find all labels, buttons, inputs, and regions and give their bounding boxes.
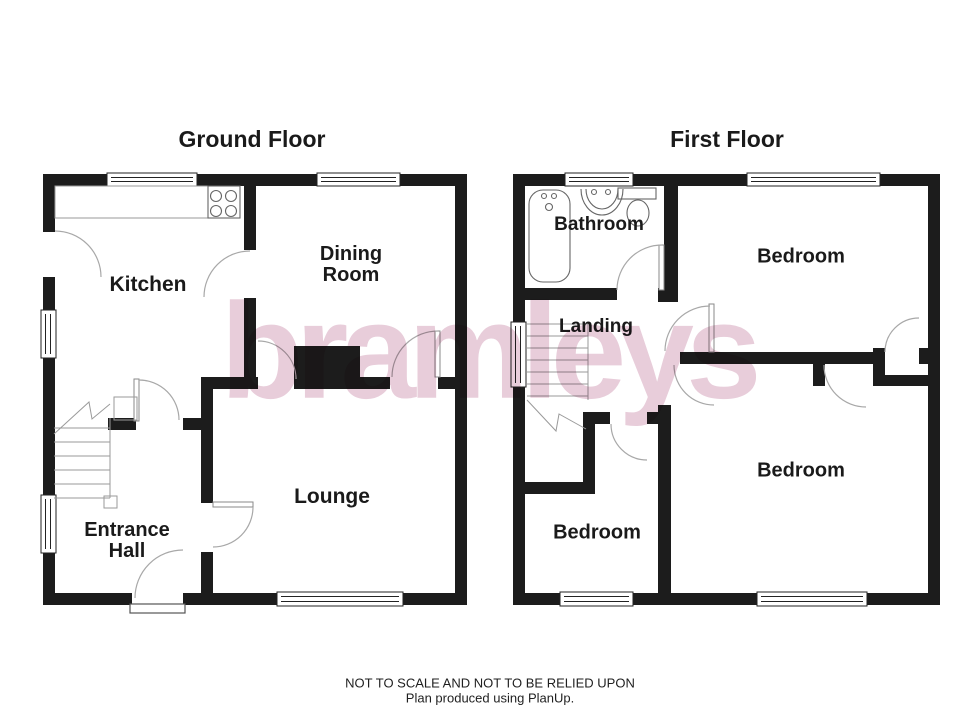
room-label-bedroom-top: Bedroom — [757, 247, 845, 268]
first-floor-title: First Floor — [670, 127, 784, 151]
room-label-entrance-hall: Entrance Hall — [84, 520, 170, 562]
window — [565, 173, 633, 186]
window — [511, 322, 526, 387]
floor-plan-page: Ground Floor First Floor Kitchen Dining … — [0, 0, 980, 712]
window — [107, 173, 197, 186]
kitchen-counter — [55, 186, 208, 218]
window — [41, 310, 56, 358]
footer-disclaimer: NOT TO SCALE AND NOT TO BE RELIED UPON — [345, 676, 635, 691]
sink — [581, 189, 623, 215]
bathtub — [529, 190, 570, 282]
window — [41, 495, 56, 553]
room-label-lounge: Lounge — [294, 486, 370, 508]
ground-floor-title: Ground Floor — [179, 127, 326, 151]
window — [757, 592, 867, 606]
window — [317, 173, 400, 186]
chimney-breast — [294, 346, 360, 389]
stairs — [54, 402, 117, 508]
window — [560, 592, 633, 606]
room-label-bedroom-right: Bedroom — [757, 461, 845, 482]
window — [747, 173, 880, 186]
room-label-kitchen: Kitchen — [109, 274, 186, 296]
hob — [208, 186, 240, 218]
stairs — [527, 322, 588, 431]
floor-plan-drawing — [0, 0, 980, 712]
footer-planup-credit: Plan produced using PlanUp. — [406, 691, 574, 706]
room-label-bedroom-left: Bedroom — [553, 523, 641, 544]
room-label-landing: Landing — [559, 317, 633, 337]
room-label-dining-room: Dining Room — [320, 244, 382, 286]
window — [277, 592, 403, 606]
room-label-bathroom: Bathroom — [554, 215, 644, 235]
front-door — [130, 604, 185, 613]
